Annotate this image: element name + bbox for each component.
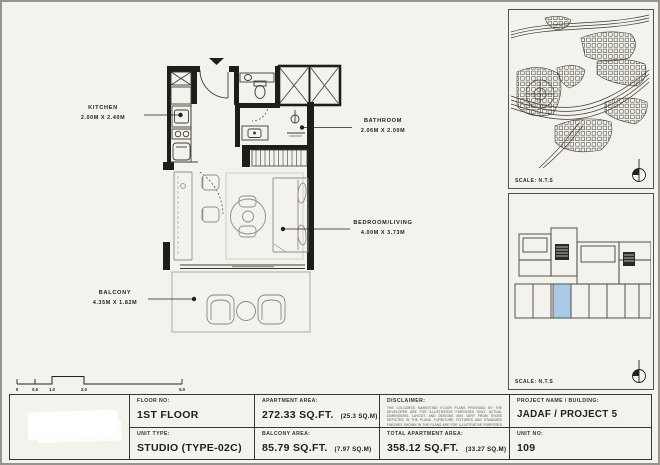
balcony-area-value: 85.79 SQ.FT.: [262, 442, 327, 454]
unit-type-label: UNIT TYPE:: [137, 431, 247, 437]
room-dims: 2.06M X 2.00M: [352, 129, 414, 134]
floor-no-value: 1ST FLOOR: [137, 409, 247, 421]
room-name: BALCONY: [84, 291, 146, 297]
disclaimer-label: DISCLAIMER:: [387, 398, 502, 404]
unit-no-label: UNIT NO:: [517, 431, 644, 437]
total-area-cell: TOTAL APARTMENT AREA: 358.12 SQ.FT.(33.2…: [379, 427, 509, 459]
scale-tick-0: 0: [16, 387, 19, 392]
services-shaft: [279, 66, 340, 105]
total-area-value: 358.12 SQ.FT.: [387, 442, 459, 454]
disclaimer-cell: DISCLAIMER: THE COLOURED MARKETING FLOOR…: [379, 395, 509, 427]
walls: [163, 58, 314, 270]
scale-tick-1: 1.0: [49, 387, 55, 392]
room-dims: 4.00M X 3.73M: [350, 231, 416, 236]
logo-cell: [10, 395, 129, 459]
north-arrow-icon: [629, 359, 649, 385]
balcony-area-metric: (7.97 SQ.M): [334, 446, 371, 453]
key-plan-scale-note: SCALE: N.T.S: [515, 379, 553, 385]
north-arrow-icon: [629, 158, 649, 184]
project-name-label: PROJECT NAME / BUILDING:: [517, 398, 644, 404]
highlighted-unit: [553, 284, 571, 318]
scale-tick-05: 0.5: [32, 387, 38, 392]
apartment-area-cell: APARTMENT AREA: 272.33 SQ.FT.(25.3 SQ.M): [254, 395, 379, 427]
entry-door: [200, 70, 228, 98]
room-label-bedroom-living: BEDROOM/LIVING 4.00M X 3.73M: [350, 221, 416, 236]
balcony: [172, 272, 310, 332]
apartment-area-label: APARTMENT AREA:: [262, 398, 372, 404]
room-name: KITCHEN: [64, 106, 142, 112]
room-label-kitchen: KITCHEN 2.00M X 2.40M: [64, 106, 142, 121]
key-plan-panel: SCALE: N.T.S: [508, 193, 654, 390]
wardrobe: [252, 150, 307, 166]
room-name: BEDROOM/LIVING: [350, 221, 416, 227]
project-name-cell: PROJECT NAME / BUILDING: JADAF / PROJECT…: [509, 395, 651, 427]
apartment-area-value: 272.33 SQ.FT.: [262, 409, 334, 421]
unit-type-value: STUDIO (TYPE-02C): [137, 442, 247, 454]
key-plan-drawing: [509, 194, 651, 370]
room-label-bathroom: BATHROOM 2.06M X 2.00M: [352, 119, 414, 134]
bathroom-fixtures: [240, 73, 274, 121]
unit-no-value: 109: [517, 442, 644, 454]
unit-type-cell: UNIT TYPE: STUDIO (TYPE-02C): [129, 427, 254, 459]
site-map-drawing: [509, 10, 651, 170]
balcony-window: [180, 265, 305, 269]
floor-plan-drawing: 0 0.5 1.0 2.0 5.0: [2, 2, 507, 394]
room-name: BATHROOM: [352, 119, 414, 125]
project-name-value: JADAF / PROJECT 5: [517, 409, 644, 420]
apartment-area-metric: (25.3 SQ.M): [341, 413, 378, 420]
room-dims: 4.35M X 1.82M: [84, 301, 146, 306]
floorplan-sheet: 0 0.5 1.0 2.0 5.0 KITCHEN 2.00M X 2.40M …: [0, 0, 660, 465]
total-area-label: TOTAL APARTMENT AREA:: [387, 431, 502, 437]
scale-tick-5: 5.0: [179, 387, 185, 392]
unit-no-cell: UNIT NO: 109: [509, 427, 651, 459]
living-furniture: [174, 172, 308, 260]
site-map-panel: SCALE: N.T.S: [508, 9, 654, 189]
room-dims: 2.00M X 2.40M: [64, 116, 142, 121]
vanity-shower: [200, 110, 305, 214]
scale-tick-2: 2.0: [81, 387, 87, 392]
title-block: FLOOR NO: 1ST FLOOR APARTMENT AREA: 272.…: [9, 394, 652, 460]
scale-bar: 0 0.5 1.0 2.0 5.0: [16, 377, 186, 393]
site-map-scale-note: SCALE: N.T.S: [515, 178, 553, 184]
disclaimer-text: THE COLOURED MARKETING FLOOR PLANS PROVI…: [387, 406, 502, 427]
total-area-metric: (33.27 SQ.M): [466, 446, 507, 453]
balcony-area-label: BALCONY AREA:: [262, 431, 372, 437]
redacted-logo: [28, 409, 119, 438]
balcony-area-cell: BALCONY AREA: 85.79 SQ.FT.(7.97 SQ.M): [254, 427, 379, 459]
floor-no-cell: FLOOR NO: 1ST FLOOR: [129, 395, 254, 427]
floor-no-label: FLOOR NO:: [137, 398, 247, 404]
room-label-balcony: BALCONY 4.35M X 1.82M: [84, 291, 146, 306]
